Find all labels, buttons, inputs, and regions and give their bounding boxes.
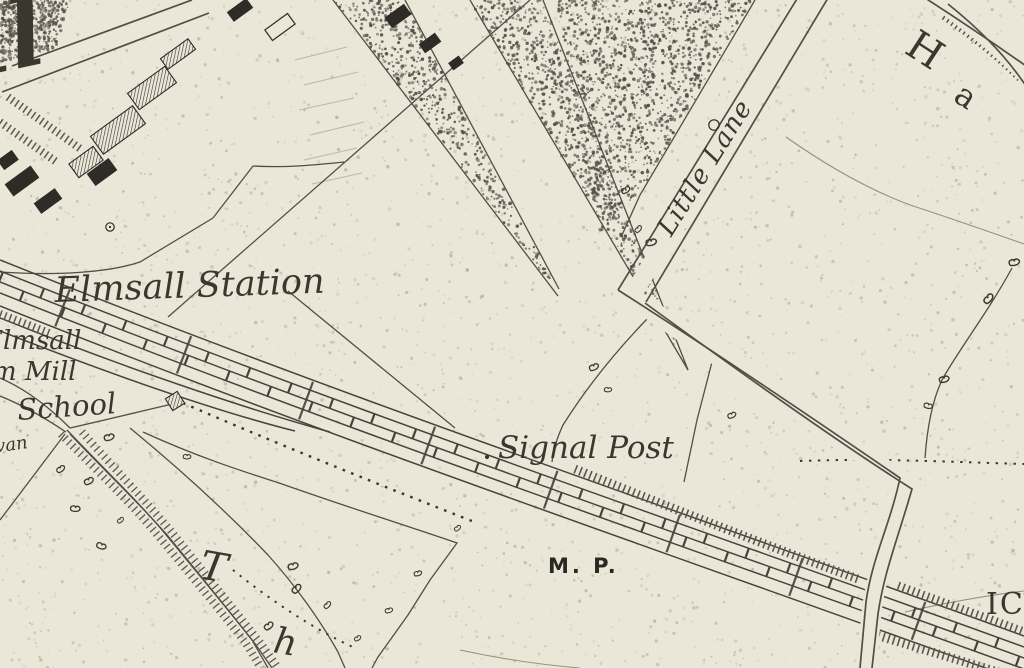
map-canvas: ll Elmsall Station Elmsall m Mill School… (0, 0, 1024, 668)
label-mill-cut: m Mill (0, 357, 77, 387)
label-edge-number: IC (986, 587, 1024, 622)
label-elmsall-cut: Elmsall (0, 326, 81, 356)
label-school: School (16, 386, 117, 427)
label-mile-post: M. P. (548, 554, 619, 578)
label-signal-post: Signal Post (498, 430, 674, 466)
map-viewport: ll Elmsall Station Elmsall m Mill School… (0, 0, 1024, 668)
signal-post-dot (485, 455, 489, 459)
